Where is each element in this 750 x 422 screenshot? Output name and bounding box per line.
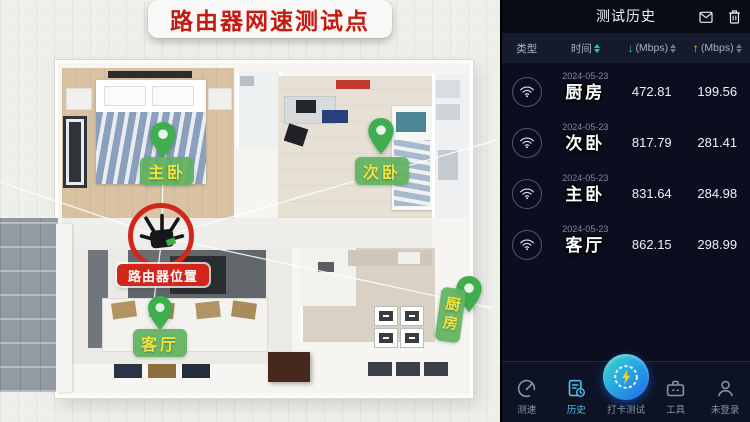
- sink: [398, 252, 420, 264]
- stove-burner: [374, 328, 398, 348]
- table-row[interactable]: 2024-05-23 主卧 831.64 284.98: [502, 168, 750, 219]
- gauge-bolt-icon: [611, 362, 641, 392]
- cushion: [111, 300, 137, 319]
- app-header: 测试历史: [502, 0, 750, 33]
- router-device: [138, 212, 186, 260]
- floorplan-title-banner: 路由器网速测试点: [148, 0, 392, 38]
- rug: [148, 364, 176, 378]
- history-list: 2024-05-23 厨房 472.81 199.56 2024-05-23 次…: [502, 66, 750, 270]
- toolbox-icon: [665, 378, 686, 399]
- nav-history[interactable]: 历史: [552, 362, 602, 422]
- nav-account-label: 未登录: [711, 402, 740, 416]
- appliance: [436, 104, 460, 120]
- export-icon[interactable]: [698, 9, 714, 25]
- appliance: [438, 150, 458, 180]
- tv-bar: [108, 71, 192, 78]
- upload-value: 199.56: [685, 84, 750, 99]
- pillow: [104, 86, 146, 106]
- nav-account[interactable]: 未登录: [700, 362, 750, 422]
- rug: [322, 110, 348, 123]
- bath-fixture: [240, 76, 254, 86]
- test-location: 厨房: [565, 78, 605, 103]
- sort-carets-icon: [670, 44, 676, 53]
- wifi-icon: [512, 179, 542, 209]
- sort-carets-icon: [736, 44, 742, 53]
- cushion: [231, 300, 257, 319]
- download-arrow-icon: ↓: [627, 41, 633, 55]
- cushion: [195, 301, 221, 319]
- map-pin-icon: [368, 118, 394, 154]
- download-value: 862.15: [619, 237, 684, 252]
- column-upload[interactable]: ↑ (Mbps): [685, 41, 750, 55]
- map-pin-icon: [150, 122, 176, 158]
- appliance: [436, 80, 460, 98]
- download-value: 472.81: [619, 84, 684, 99]
- wardrobe-wall: [0, 218, 58, 392]
- wifi-icon: [512, 230, 542, 260]
- wifi-icon: [512, 128, 542, 158]
- nav-tools[interactable]: 工具: [651, 362, 701, 422]
- nav-checkin-label: 打卡测试: [607, 402, 645, 416]
- stove-burner: [374, 306, 398, 326]
- router-location-label: 路由器位置: [117, 264, 209, 286]
- table-row[interactable]: 2024-05-23 客厅 862.15 298.99: [502, 219, 750, 270]
- room-tag-living-room: 客厅: [133, 329, 187, 357]
- window: [63, 116, 87, 188]
- stove-burner: [400, 328, 424, 348]
- download-value: 831.64: [619, 186, 684, 201]
- table-row[interactable]: 2024-05-23 次卧 817.79 281.41: [502, 117, 750, 168]
- dining-table: [268, 352, 310, 382]
- floor-mat: [396, 362, 420, 376]
- pillow: [396, 112, 426, 132]
- nav-tools-label: 工具: [666, 402, 685, 416]
- floor-mat: [368, 362, 392, 376]
- test-location: 主卧: [565, 180, 605, 205]
- wall-pillar: [56, 224, 72, 392]
- floorplan-panel: 路由器位置 主卧 次卧 客厅 厨房 路由器网速测试点: [0, 0, 500, 422]
- air-conditioner: [336, 80, 370, 89]
- floor-mat: [424, 362, 448, 376]
- history-icon: [566, 378, 587, 399]
- user-icon: [715, 378, 736, 399]
- room-tag-master-bedroom: 主卧: [140, 157, 194, 185]
- nightstand: [66, 88, 92, 110]
- column-type[interactable]: 类型: [502, 41, 552, 56]
- corridor: [62, 218, 432, 248]
- pillow: [152, 86, 194, 106]
- nav-checkin-test[interactable]: 打卡测试: [601, 362, 651, 422]
- table-row[interactable]: 2024-05-23 厨房 472.81 199.56: [502, 66, 750, 117]
- bath-fixture: [318, 262, 334, 272]
- nav-speedtest[interactable]: 测速: [502, 362, 552, 422]
- upload-arrow-icon: ↑: [693, 41, 699, 55]
- upload-value: 281.41: [685, 135, 750, 150]
- download-value: 817.79: [619, 135, 684, 150]
- test-location: 次卧: [565, 129, 605, 154]
- nav-speedtest-label: 测速: [517, 402, 536, 416]
- column-time-label: 时间: [571, 41, 592, 56]
- map-pin-icon: [148, 296, 172, 330]
- sort-carets-icon: [594, 44, 600, 53]
- bottom-navigation: 测速 历史 打卡测试: [502, 361, 750, 422]
- nightstand: [208, 88, 232, 110]
- nav-history-label: 历史: [567, 402, 586, 416]
- column-download-label: (Mbps): [635, 42, 668, 54]
- column-upload-label: (Mbps): [701, 42, 734, 54]
- laptop: [296, 100, 316, 113]
- wifi-icon: [512, 77, 542, 107]
- column-time[interactable]: 时间: [552, 41, 619, 56]
- room-tag-second-bedroom: 次卧: [355, 157, 409, 185]
- router-highlight-circle: [128, 203, 194, 269]
- speedtest-app-panel: 测试历史 类型 时间 ↓ (Mbps): [500, 0, 750, 422]
- test-location: 客厅: [565, 231, 605, 256]
- table-header: 类型 时间 ↓ (Mbps) ↑ (Mbps): [502, 33, 750, 63]
- floorplan-title: 路由器网速测试点: [170, 2, 370, 36]
- rug: [114, 364, 142, 378]
- column-download[interactable]: ↓ (Mbps): [619, 41, 684, 55]
- upload-value: 284.98: [685, 186, 750, 201]
- rug: [182, 364, 210, 378]
- speedometer-icon: [516, 378, 537, 399]
- upload-value: 298.99: [685, 237, 750, 252]
- checkin-test-button[interactable]: [603, 354, 649, 400]
- screenshot-root: 路由器位置 主卧 次卧 客厅 厨房 路由器网速测试点 测试历史: [0, 0, 750, 422]
- trash-icon[interactable]: [727, 9, 742, 25]
- stove-burner: [400, 306, 424, 326]
